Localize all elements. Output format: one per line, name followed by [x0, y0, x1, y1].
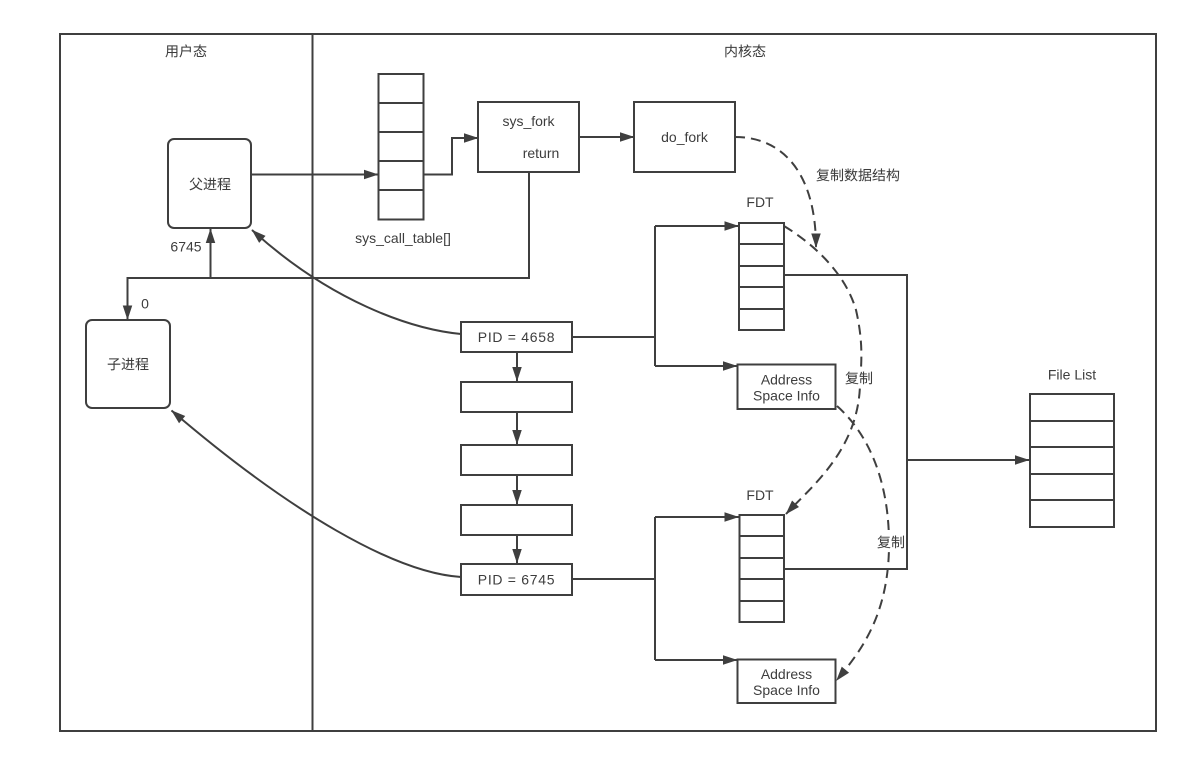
svg-text:FDT: FDT [746, 194, 774, 210]
svg-text:PID = 6745: PID = 6745 [478, 572, 555, 588]
svg-text:do_fork: do_fork [661, 129, 709, 145]
svg-text:sys_call_table[]: sys_call_table[] [355, 230, 451, 246]
svg-text:return: return [523, 145, 560, 161]
svg-text:Address: Address [761, 666, 812, 682]
svg-text:sys_fork: sys_fork [502, 113, 555, 129]
svg-text:Address: Address [761, 372, 812, 388]
svg-text:0: 0 [141, 296, 149, 312]
svg-text:PID = 4658: PID = 4658 [478, 329, 555, 345]
svg-text:6745: 6745 [170, 239, 201, 255]
svg-text:File List: File List [1048, 367, 1096, 383]
svg-text:Space Info: Space Info [753, 388, 820, 404]
svg-text:Space Info: Space Info [753, 682, 820, 698]
svg-text:FDT: FDT [746, 487, 774, 503]
